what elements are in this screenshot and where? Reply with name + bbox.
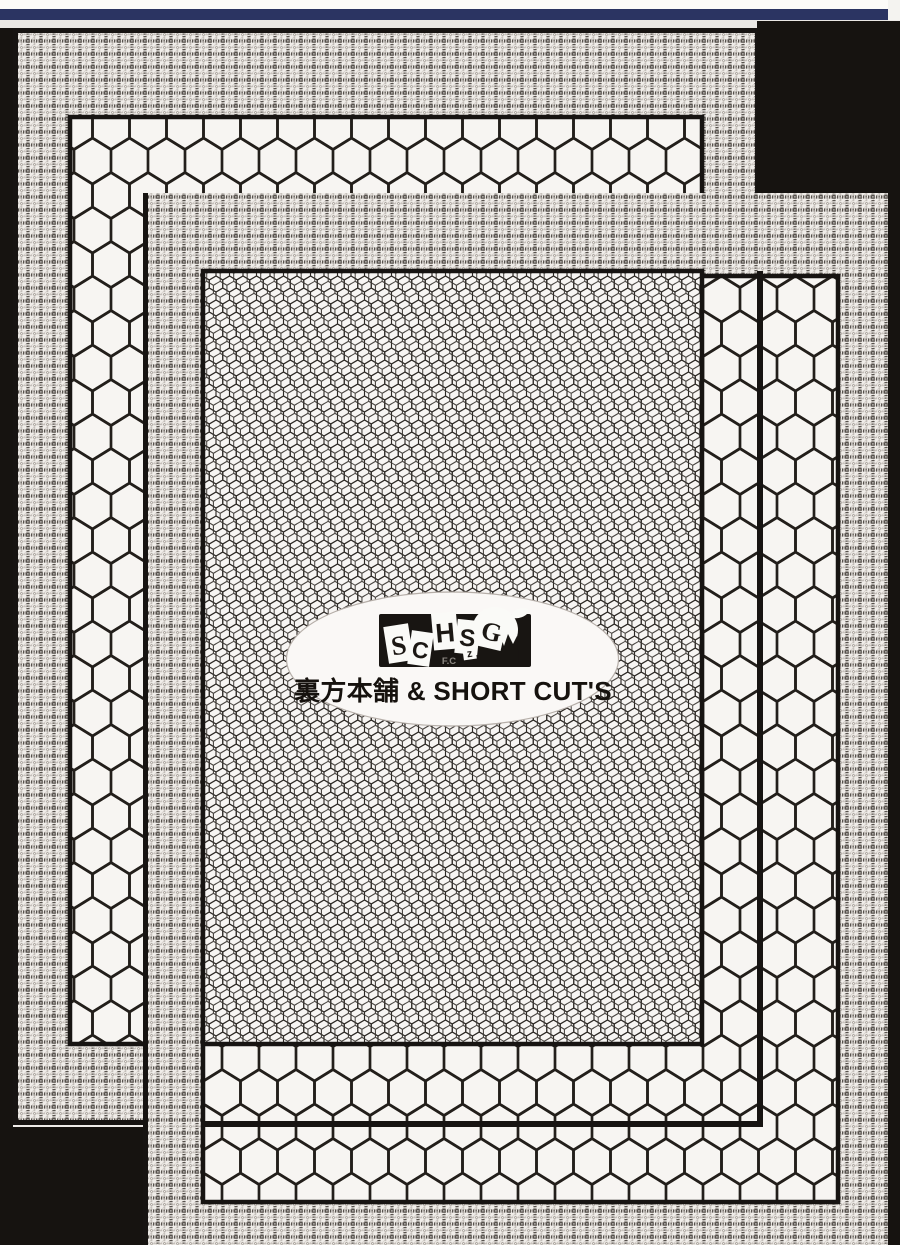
front-sheet-bottom-edge xyxy=(203,1121,763,1127)
logo-small-letter-tile: z xyxy=(462,646,477,661)
top-light-strip xyxy=(0,20,888,28)
right-black-strip xyxy=(888,21,900,1245)
scanned-page: S C H S G z F.C 裏方本舗 & SHORT CUT'S xyxy=(0,0,900,1245)
top-navy-bar xyxy=(0,9,888,20)
logo-sub-label: F.C xyxy=(442,656,456,667)
logo-letter-tile: C xyxy=(407,630,434,667)
front-sheet-right-edge xyxy=(757,271,763,1127)
top-right-black-region xyxy=(757,21,900,193)
cover-title: 裏方本舗 & SHORT CUT'S xyxy=(288,668,618,710)
bottom-left-black-region xyxy=(0,1127,143,1245)
under-page-left-edge xyxy=(143,193,148,1245)
top-right-white-corner xyxy=(888,0,900,20)
left-black-strip xyxy=(0,28,13,1245)
top-white-strip xyxy=(0,0,900,9)
logo-letter-tile: H xyxy=(431,611,459,650)
logo-box: S C H S G z F.C xyxy=(374,598,538,676)
logo-letter: H xyxy=(434,617,456,649)
